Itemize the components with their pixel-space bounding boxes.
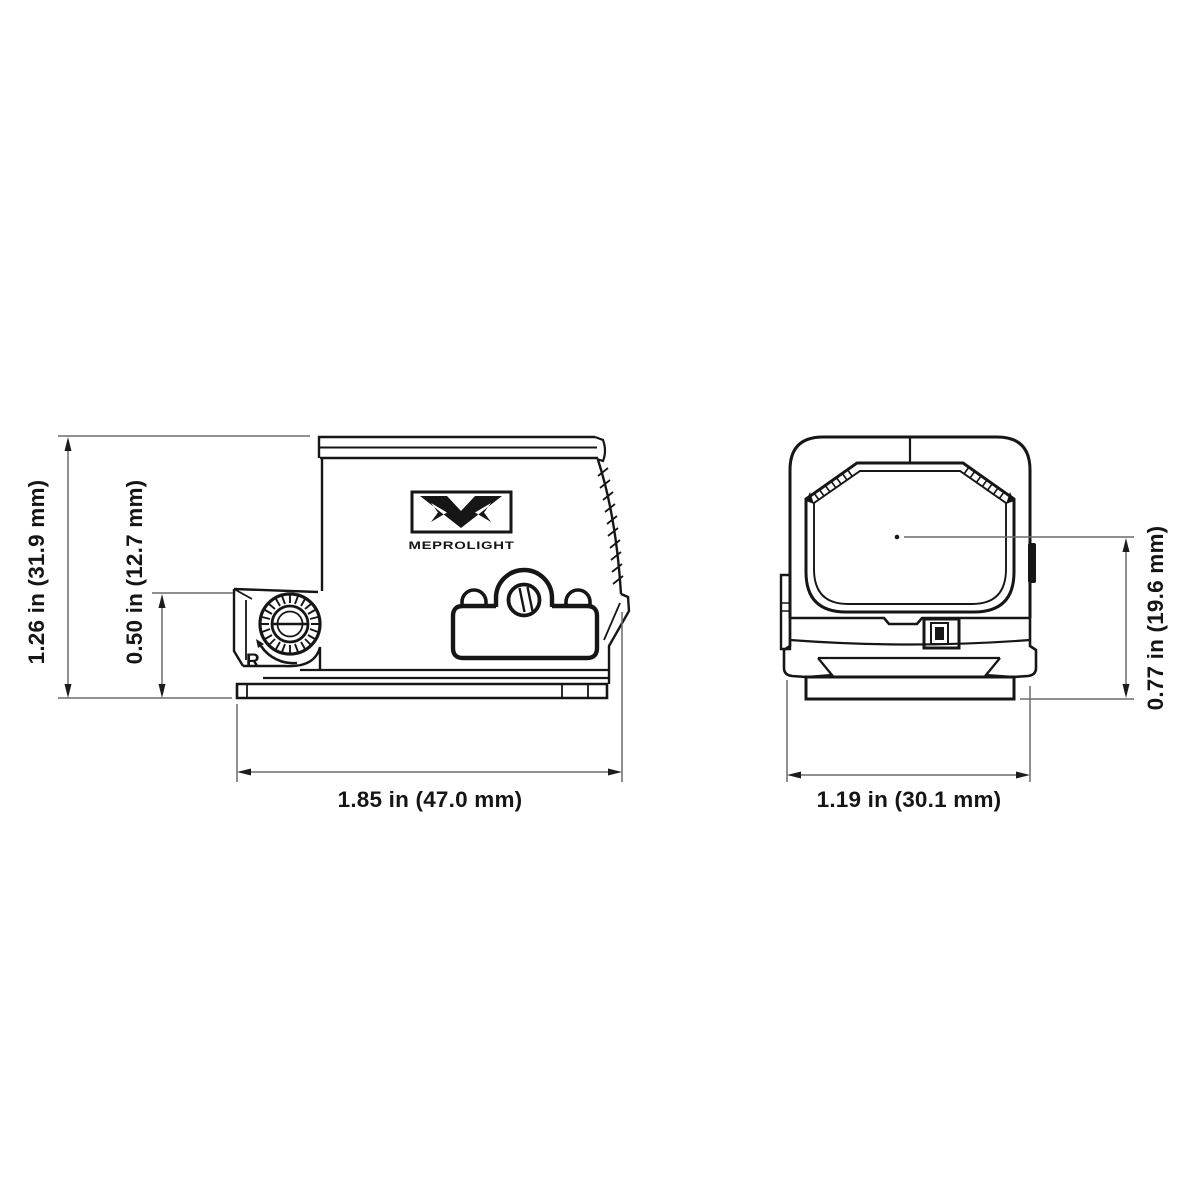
technical-drawing-canvas: R MEPROLIGHT <box>0 0 1200 1200</box>
meprolight-logo: MEPROLIGHT <box>409 492 515 552</box>
dimensional-diagram: R MEPROLIGHT <box>0 0 1200 1200</box>
right-side-tab <box>1028 543 1036 583</box>
battery-compartment <box>453 570 597 658</box>
mount-bottom-plate <box>806 677 1014 699</box>
mounting-base-plate <box>237 684 607 698</box>
front-view <box>781 437 1036 699</box>
housing-top-band <box>319 437 605 461</box>
brand-wordmark: MEPROLIGHT <box>409 540 515 552</box>
dim-adjuster-height: 0.50 in (12.7 mm) <box>122 480 233 698</box>
side-view: R MEPROLIGHT <box>234 437 629 698</box>
logo-m-emblem <box>420 496 502 528</box>
dim-overall-width-label: 1.19 in (30.1 mm) <box>817 787 1002 812</box>
dim-overall-height: 1.26 in (31.9 mm) <box>24 436 310 698</box>
adjustment-turret: R <box>234 589 320 672</box>
dim-adjuster-height-label: 0.50 in (12.7 mm) <box>122 480 147 665</box>
dial-rotation-label: R <box>246 651 260 672</box>
dim-overall-height-label: 1.26 in (31.9 mm) <box>24 480 49 665</box>
curved-edge-hatching <box>598 468 623 584</box>
dim-overall-length-label: 1.85 in (47.0 mm) <box>338 787 523 812</box>
dim-axis-height-label: 0.77 in (19.6 mm) <box>1143 526 1168 711</box>
optical-axis-dot <box>895 535 900 540</box>
adjustment-dial <box>260 594 320 654</box>
dovetail-mount <box>784 618 1036 699</box>
